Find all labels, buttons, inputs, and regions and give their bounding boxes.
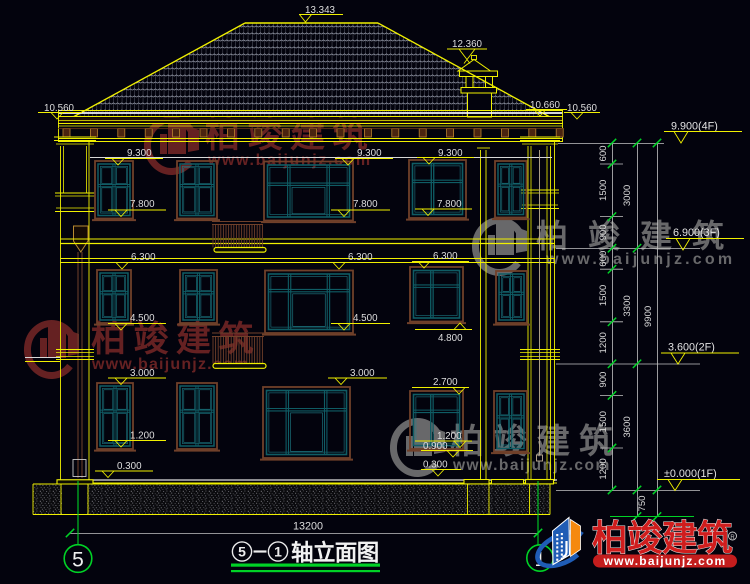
svg-text:柏竣建筑: 柏竣建筑 (450, 422, 622, 461)
svg-text:9.300: 9.300 (357, 148, 382, 159)
svg-text:7.800: 7.800 (437, 199, 462, 210)
svg-text:1200: 1200 (598, 332, 609, 353)
svg-text:3.000: 3.000 (130, 368, 155, 379)
svg-text:轴立面图: 轴立面图 (291, 540, 379, 566)
svg-text:柏竣建筑: 柏竣建筑 (592, 518, 733, 558)
svg-text:3.000: 3.000 (350, 368, 375, 379)
svg-text:5: 5 (238, 544, 246, 560)
svg-text:7.800: 7.800 (353, 199, 378, 210)
svg-text:www.baijunjz.com: www.baijunjz.com (603, 554, 727, 568)
svg-text:7.800: 7.800 (130, 199, 155, 210)
svg-text:5: 5 (72, 549, 84, 572)
svg-text:9900: 9900 (643, 306, 654, 327)
svg-text:www.baijunjz.com: www.baijunjz.com (207, 152, 372, 169)
svg-text:1500: 1500 (598, 411, 609, 432)
svg-text:3600: 3600 (622, 416, 633, 437)
svg-text:12.360: 12.360 (452, 39, 483, 50)
svg-text:1500: 1500 (598, 180, 609, 201)
svg-text:4.800: 4.800 (438, 333, 463, 344)
svg-text:600: 600 (598, 251, 609, 267)
svg-text:www.baijunjz.com: www.baijunjz.com (545, 251, 735, 268)
svg-text:6.300: 6.300 (131, 252, 156, 263)
svg-text:3.600(2F): 3.600(2F) (668, 342, 715, 354)
svg-text:600: 600 (598, 145, 609, 161)
svg-text:1: 1 (274, 544, 282, 560)
svg-text:1.200: 1.200 (130, 431, 155, 442)
svg-text:1200: 1200 (598, 458, 609, 479)
svg-text:4.500: 4.500 (353, 313, 378, 324)
svg-text:750: 750 (637, 495, 648, 511)
svg-text:13200: 13200 (293, 521, 323, 533)
svg-text:9.900(4F): 9.900(4F) (671, 121, 718, 133)
svg-text:1500: 1500 (598, 285, 609, 306)
svg-text:R: R (730, 535, 735, 541)
svg-text:9.300: 9.300 (127, 148, 152, 159)
svg-text:2.700: 2.700 (433, 377, 458, 388)
svg-text:900: 900 (598, 372, 609, 388)
svg-text:3300: 3300 (622, 295, 633, 316)
svg-text:6.900(3F): 6.900(3F) (673, 227, 720, 239)
svg-text:±0.000(1F): ±0.000(1F) (664, 468, 717, 480)
svg-text:4.500: 4.500 (130, 313, 155, 324)
svg-text:0.300: 0.300 (423, 460, 448, 471)
svg-text:6.300: 6.300 (348, 252, 373, 263)
svg-text:6.300: 6.300 (433, 251, 458, 262)
svg-text:0.300: 0.300 (117, 461, 142, 472)
svg-text:900: 900 (598, 224, 609, 240)
svg-text:3000: 3000 (622, 185, 633, 206)
